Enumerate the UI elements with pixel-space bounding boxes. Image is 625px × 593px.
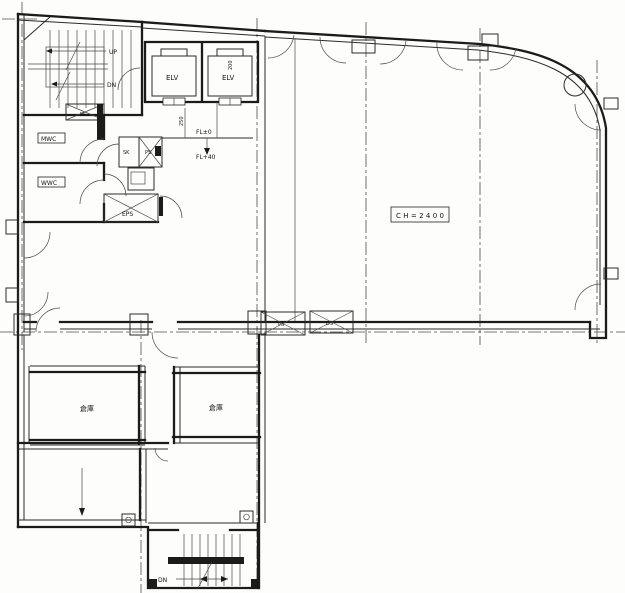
door-arc	[160, 196, 182, 218]
ds-mid-label: DS	[326, 321, 333, 327]
door-arc	[80, 139, 104, 163]
storage-room-1-label: 倉庫	[80, 404, 94, 413]
door-arc	[104, 174, 126, 196]
column-circle	[564, 74, 586, 96]
stairwell-bottom: DN	[148, 523, 259, 588]
door-arc	[36, 308, 60, 332]
door-arc	[155, 448, 168, 461]
door-swings	[24, 35, 601, 461]
elevator-2-label: ELV	[222, 74, 235, 82]
door-arc	[24, 232, 50, 258]
outer-walls	[6, 14, 618, 527]
door-arc	[490, 48, 516, 70]
stairwell-top: UP DN PS	[24, 30, 142, 140]
fl-zero-label: FL±0	[196, 129, 212, 136]
floor-plan-drawing: UP DN PS ELV ELV 200 MWC WWC	[0, 0, 625, 593]
dn-top-label: DN	[107, 82, 116, 89]
floor-device-2	[240, 511, 253, 523]
storage-room-2-label: 倉庫	[209, 403, 223, 412]
elevator-dim-label: 200	[228, 60, 234, 70]
ps-top-label: PS	[80, 112, 86, 118]
grid-centerlines	[0, 2, 625, 593]
fl-plus40-label: FL+40	[196, 154, 216, 161]
main-hall: CH=2400	[391, 74, 586, 222]
floor-plan-sheet: UP DN PS ELV ELV 200 MWC WWC	[0, 0, 625, 593]
level-annotation: 250 FL±0 FL+40	[162, 102, 253, 161]
ceiling-height-label: CH=2400	[396, 212, 444, 220]
door-arc	[118, 68, 140, 90]
restroom-area: MWC WWC SK PS EPS	[24, 115, 163, 222]
door-arc	[152, 332, 178, 358]
sk-label: SK	[123, 150, 130, 156]
ps-mid-label: PS	[278, 322, 284, 328]
mwc-label: MWC	[41, 136, 56, 143]
elevator-block: ELV ELV 200	[145, 42, 258, 105]
door-arc	[80, 180, 104, 204]
door-arc	[24, 292, 48, 316]
level-dim-label: 250	[179, 116, 185, 126]
ps-small-label: PS	[145, 150, 151, 156]
dn-bottom-label: DN	[158, 577, 167, 584]
eps-label: EPS	[122, 211, 133, 218]
elevator-1-label: ELV	[166, 74, 179, 82]
door-arc	[437, 42, 463, 70]
wwc-label: WWC	[41, 180, 57, 187]
storage-wing: 倉庫 倉庫	[18, 335, 265, 588]
up-label: UP	[109, 49, 117, 56]
